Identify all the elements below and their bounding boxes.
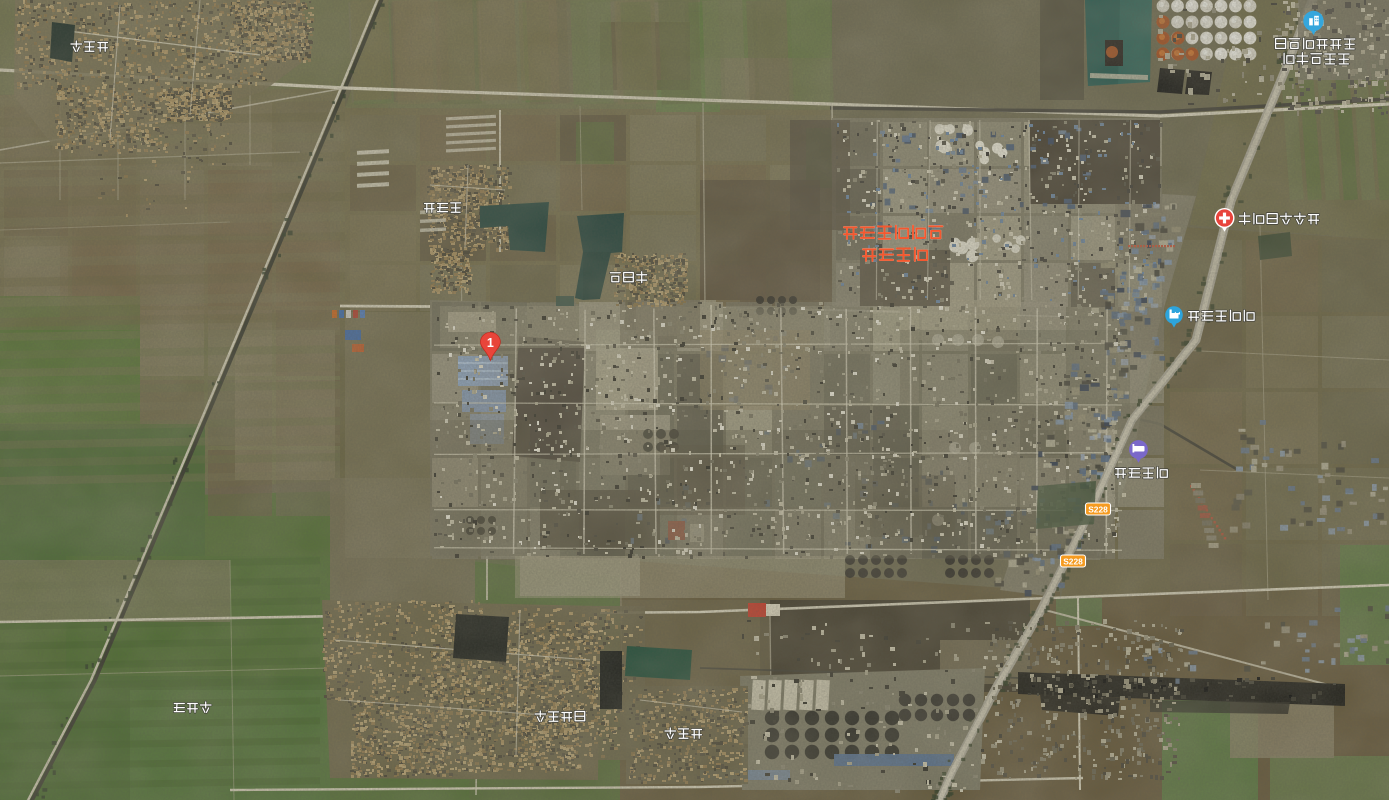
svg-text:S228: S228 — [1063, 556, 1083, 566]
svg-text:S228: S228 — [1088, 504, 1108, 514]
svg-text:1: 1 — [487, 336, 494, 350]
